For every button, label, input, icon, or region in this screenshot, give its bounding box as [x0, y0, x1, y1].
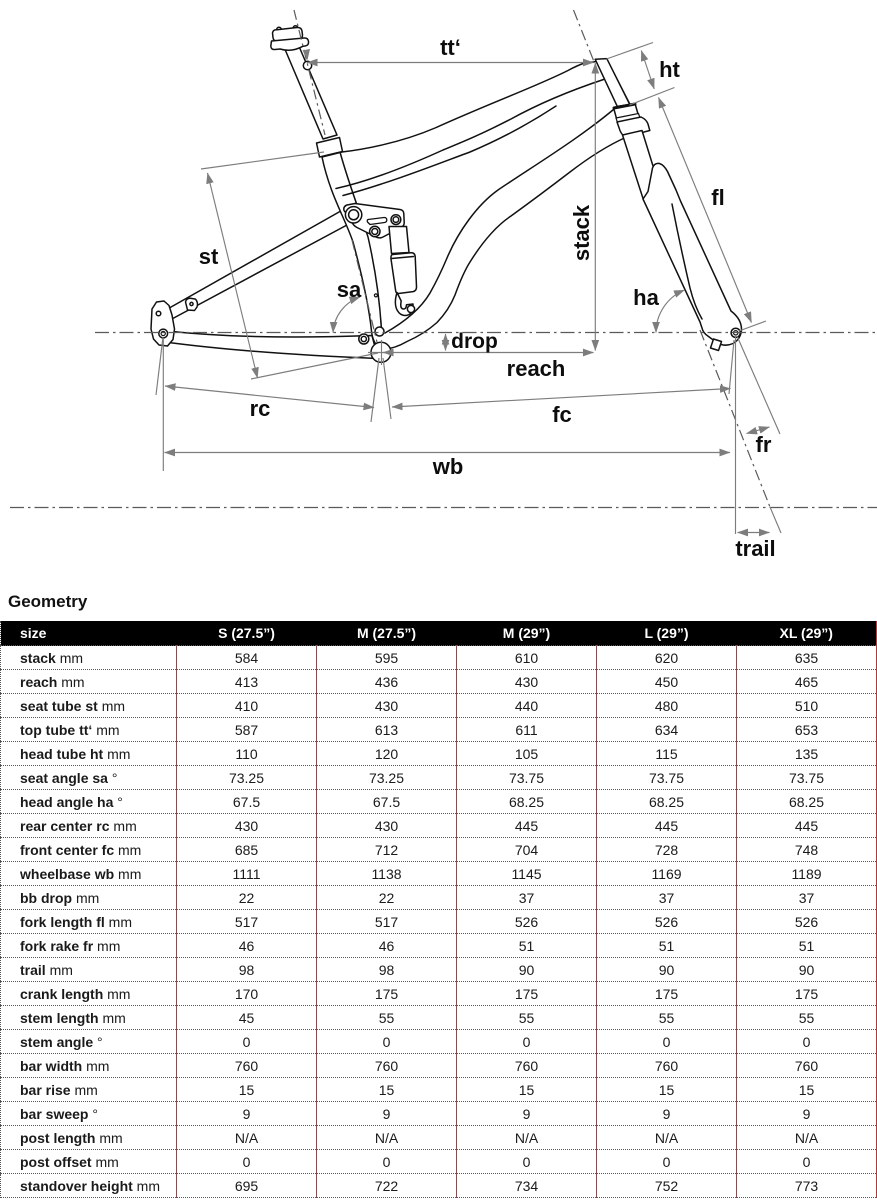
- svg-text:drop: drop: [451, 330, 498, 353]
- svg-text:reach: reach: [507, 356, 566, 381]
- svg-text:rc: rc: [250, 396, 271, 421]
- svg-text:fc: fc: [552, 402, 572, 427]
- svg-text:trail: trail: [735, 536, 775, 561]
- svg-text:wb: wb: [432, 454, 464, 479]
- svg-text:stack: stack: [569, 204, 594, 261]
- svg-text:st: st: [199, 244, 219, 269]
- svg-text:fl: fl: [711, 185, 724, 210]
- svg-text:fr: fr: [756, 432, 772, 457]
- svg-text:sa: sa: [337, 277, 362, 302]
- svg-text:ha: ha: [633, 285, 659, 310]
- svg-text:ht: ht: [659, 57, 680, 82]
- svg-text:tt‘: tt‘: [440, 35, 461, 60]
